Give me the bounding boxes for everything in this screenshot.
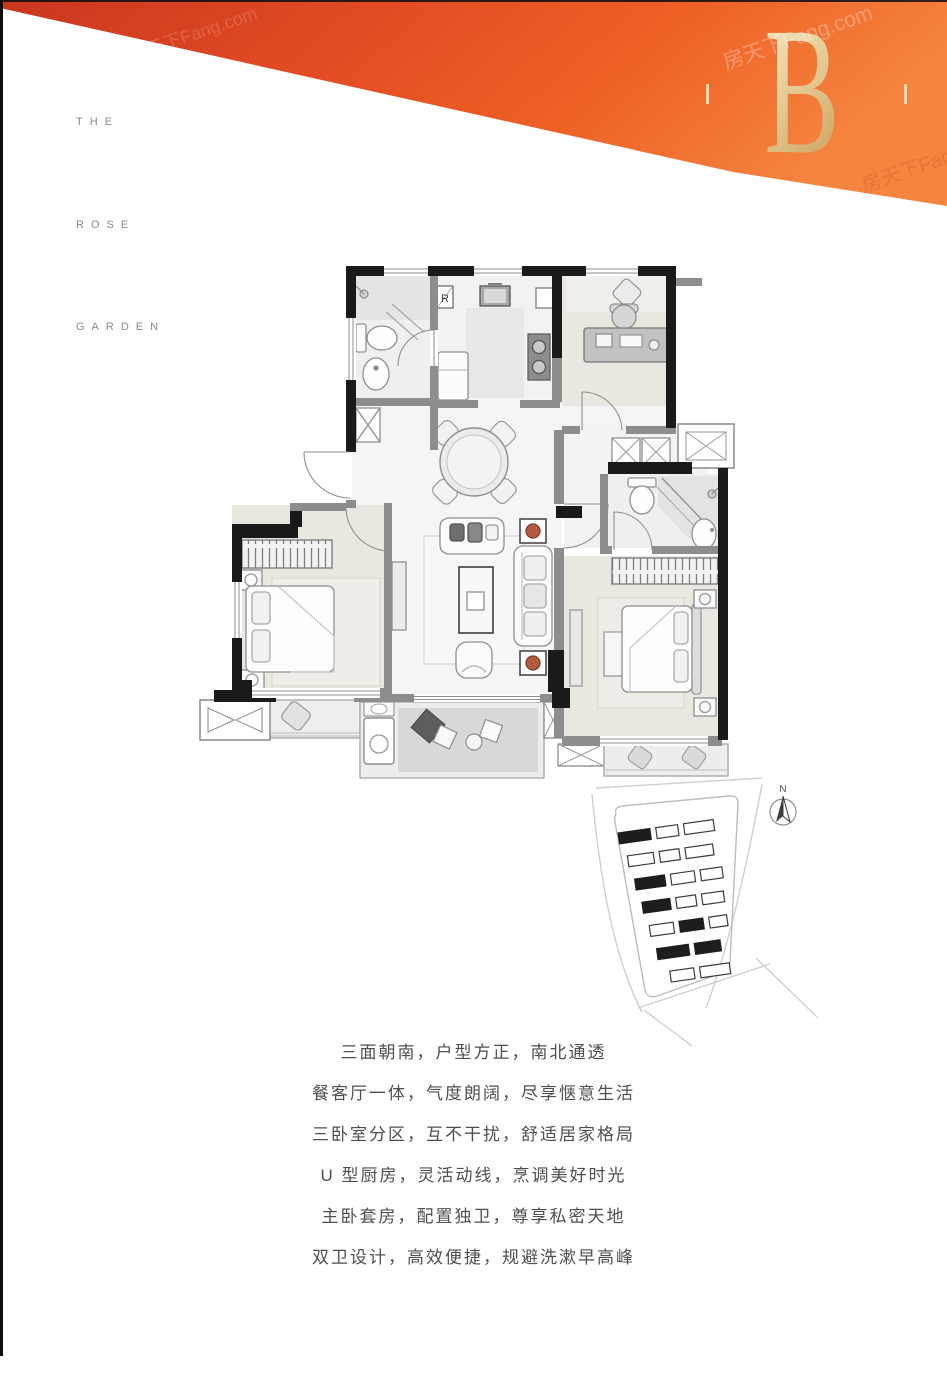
building-footprint — [642, 898, 671, 913]
compass-north-label: N — [779, 784, 786, 795]
toilet-icon — [628, 478, 656, 514]
building-footprint — [670, 871, 695, 885]
building-footprint — [700, 963, 731, 978]
tv-stand-icon — [604, 632, 624, 676]
building-footprint — [657, 944, 690, 959]
roads — [592, 778, 818, 1046]
building-footprint — [676, 895, 697, 909]
building-footprint — [627, 852, 654, 867]
unit-tick-right-icon — [904, 84, 907, 104]
building-footprint — [701, 891, 724, 905]
building-footprint — [683, 820, 714, 835]
ac-platform-icon — [678, 424, 734, 468]
balcony-master — [604, 744, 728, 776]
building-footprint — [685, 844, 714, 859]
building-footprint — [694, 940, 721, 955]
desk-icon — [584, 328, 668, 362]
brand-word-garden: GARDEN — [76, 321, 165, 333]
tv-console-icon — [392, 562, 406, 630]
building-footprint — [670, 968, 695, 982]
building-footprint — [618, 829, 651, 844]
wardrobe-icon — [612, 558, 720, 584]
building-footprint — [649, 922, 674, 936]
building-footprint — [709, 915, 728, 928]
closet-icon — [356, 408, 380, 442]
sink-icon — [363, 358, 389, 390]
site-plan: N — [592, 778, 818, 1046]
dining-area — [430, 418, 518, 506]
description-line: 双卫设计，高效便捷，规避洗漱早高峰 — [0, 1237, 947, 1278]
wardrobe-icon — [242, 540, 332, 568]
fridge-label: R — [441, 293, 449, 305]
description-line: U 型厨房，灵活动线，烹调美好时光 — [0, 1155, 947, 1196]
coffee-table-icon — [459, 567, 493, 633]
bed-icon — [246, 586, 334, 672]
floor-plan: R — [200, 266, 734, 778]
ac-platform-icon — [200, 700, 270, 740]
building-footprints — [618, 819, 737, 986]
compass-icon: N — [770, 784, 796, 825]
brand-word-the: THE — [76, 116, 119, 128]
stove-icon — [528, 334, 550, 380]
description-line: 三卧室分区，互不干扰，舒适居家格局 — [0, 1114, 947, 1155]
description-line: 三面朝南，户型方正，南北通透 — [0, 1032, 947, 1073]
entrance-door — [304, 452, 350, 498]
description-block: 三面朝南，户型方正，南北通透 餐客厅一体，气度朗阔，尽享惬意生活 三卧室分区，互… — [0, 1032, 947, 1278]
description-line: 主卧套房，配置独卫，尊享私密天地 — [0, 1196, 947, 1237]
unit-tick-left-icon — [706, 84, 709, 104]
building-footprint — [700, 867, 723, 881]
building-footprint — [656, 825, 679, 839]
building-footprint — [635, 875, 666, 890]
page-edge-top — [0, 0, 947, 2]
bench-icon — [570, 610, 582, 686]
building-footprint — [679, 918, 704, 932]
sofa-icon — [514, 546, 552, 646]
banner: B 房天下Fang.com 房天下Fang.com — [0, 0, 947, 206]
fridge-icon — [438, 352, 468, 400]
armchair-icon — [456, 642, 492, 678]
chaise-sofa-icon — [440, 518, 504, 554]
building-footprint — [659, 849, 680, 863]
toilet-icon — [356, 324, 397, 352]
master-bed-icon — [622, 604, 701, 694]
desk-chair-icon — [612, 305, 636, 329]
brand-word-rose: ROSE — [76, 219, 135, 231]
description-line: 餐客厅一体，气度朗阔，尽享惬意生活 — [0, 1073, 947, 1114]
floor-plan-poster: B 房天下Fang.com 房天下Fang.com 房天下Fang.com 房天… — [0, 0, 947, 1400]
sink-icon — [692, 519, 716, 549]
washing-machine-icon — [364, 702, 394, 764]
balcony-center — [360, 702, 544, 778]
